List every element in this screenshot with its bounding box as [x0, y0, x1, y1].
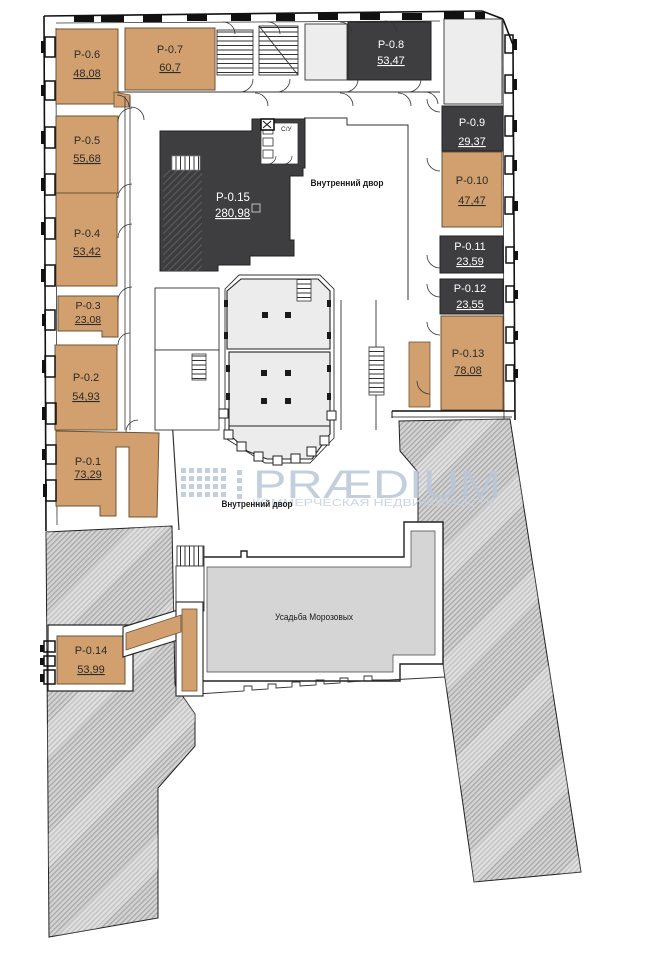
svg-text:48,08: 48,08	[73, 68, 101, 80]
svg-text:Внутренний двор: Внутренний двор	[222, 499, 293, 510]
svg-text:23,08: 23,08	[75, 314, 101, 326]
svg-text:Р-0.8: Р-0.8	[378, 39, 404, 51]
svg-text:280,98: 280,98	[215, 208, 250, 220]
svg-text:Р-0.13: Р-0.13	[452, 348, 484, 360]
svg-text:29,37: 29,37	[458, 136, 486, 148]
svg-text:Р-0.9: Р-0.9	[459, 117, 485, 129]
svg-text:53,99: 53,99	[77, 664, 105, 676]
svg-text:Р-0.2: Р-0.2	[73, 372, 99, 384]
svg-text:Р-0.15: Р-0.15	[216, 192, 250, 204]
svg-text:78,08: 78,08	[454, 365, 482, 377]
svg-text:Р-0.7: Р-0.7	[157, 44, 183, 56]
svg-text:Р-0.5: Р-0.5	[74, 135, 100, 147]
svg-text:53,47: 53,47	[377, 55, 405, 67]
svg-text:С/У: С/У	[281, 126, 293, 133]
svg-text:Р-0.6: Р-0.6	[74, 49, 100, 61]
svg-text:60,7: 60,7	[159, 62, 180, 74]
svg-text:Р-0.10: Р-0.10	[456, 175, 488, 187]
svg-text:Р-0.1: Р-0.1	[75, 456, 101, 468]
svg-text:Р-0.3: Р-0.3	[75, 300, 100, 312]
svg-text:54,93: 54,93	[72, 391, 100, 403]
svg-text:Р-0.12: Р-0.12	[454, 283, 486, 295]
svg-text:55,68: 55,68	[73, 153, 101, 165]
svg-text:Р-0.14: Р-0.14	[75, 645, 107, 657]
svg-text:Р-0.11: Р-0.11	[454, 241, 486, 253]
svg-text:Р-0.4: Р-0.4	[74, 228, 100, 240]
svg-text:Внутренний двор: Внутренний двор	[311, 178, 384, 189]
svg-text:Усадьба Морозовых: Усадьба Морозовых	[275, 612, 353, 623]
svg-text:53,42: 53,42	[73, 246, 101, 258]
svg-text:23,59: 23,59	[456, 256, 484, 268]
svg-text:23,55: 23,55	[456, 299, 484, 311]
svg-text:47,47: 47,47	[458, 195, 486, 207]
svg-text:73,29: 73,29	[74, 469, 102, 481]
